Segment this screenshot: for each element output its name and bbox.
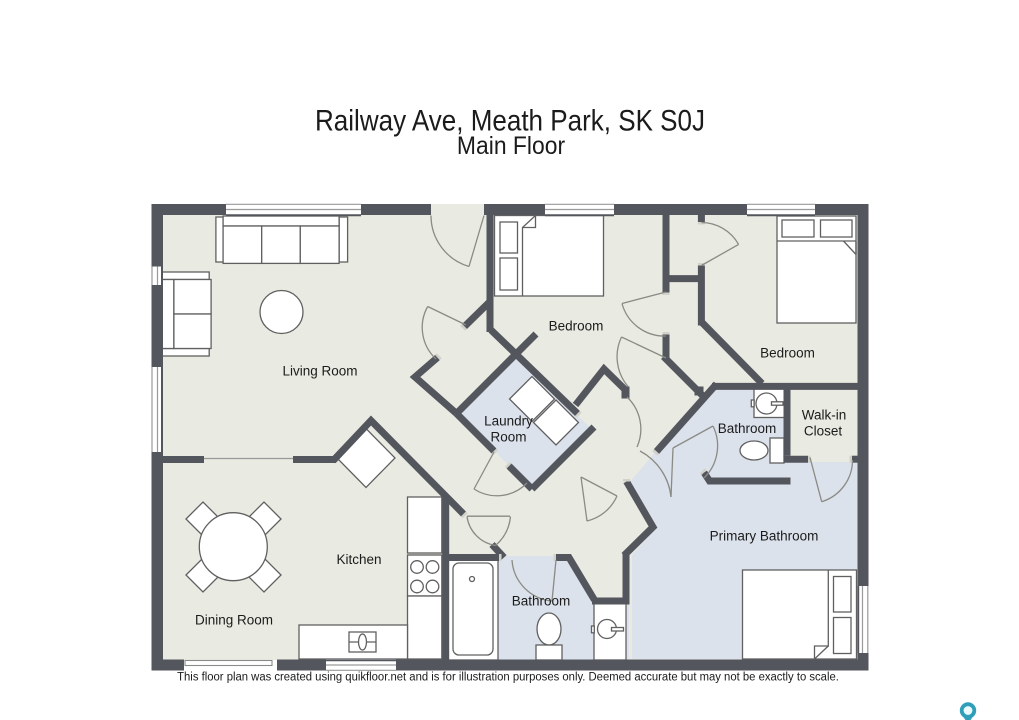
svg-text:Room: Room — [490, 430, 526, 445]
svg-text:Walk-in: Walk-in — [802, 408, 847, 423]
svg-text:Bathroom: Bathroom — [512, 594, 571, 609]
svg-text:Kitchen: Kitchen — [336, 552, 381, 567]
svg-text:Closet: Closet — [804, 424, 843, 439]
svg-text:Dining Room: Dining Room — [195, 613, 273, 628]
svg-text:This floor plan was created us: This floor plan was created using quikfl… — [177, 670, 839, 683]
svg-text:Bedroom: Bedroom — [549, 319, 604, 334]
svg-text:Primary Bathroom: Primary Bathroom — [710, 529, 819, 544]
svg-text:Bathroom: Bathroom — [718, 421, 777, 436]
svg-text:Bedroom: Bedroom — [760, 346, 815, 361]
svg-text:Laundry: Laundry — [484, 414, 533, 429]
svg-text:Main Floor: Main Floor — [457, 132, 565, 160]
svg-text:Living Room: Living Room — [282, 364, 357, 379]
